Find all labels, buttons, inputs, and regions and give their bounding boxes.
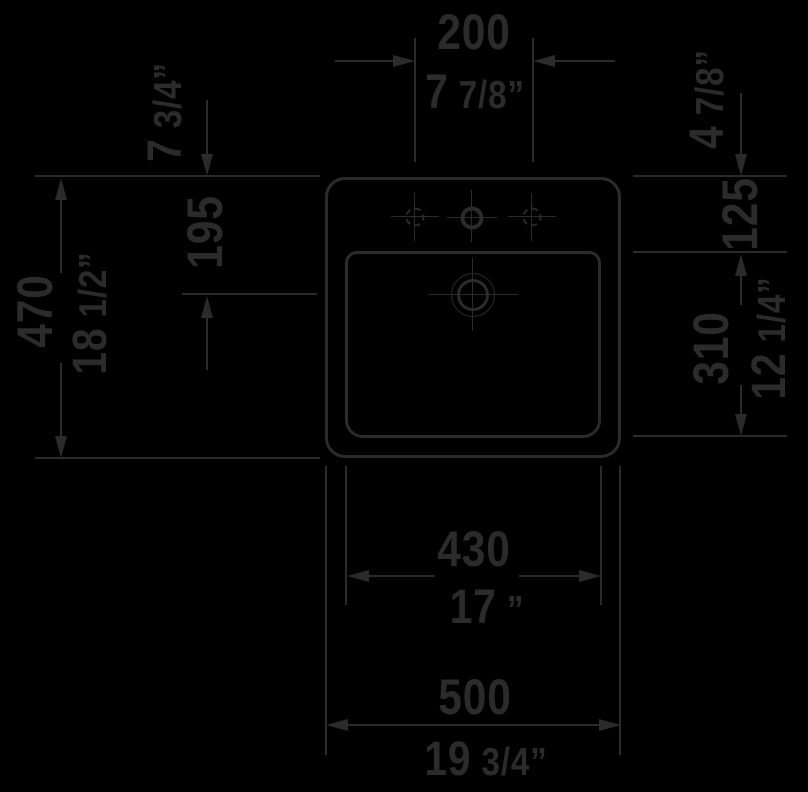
extension-line-basin-right (600, 466, 602, 605)
dim-basin-width-inch-label: 17 ” (450, 584, 525, 632)
dim-basin-width-line-left (369, 575, 435, 577)
dim-basin-width-line-right (519, 575, 581, 577)
dim-rim-basin-line-top (740, 93, 742, 156)
dim-tap-spacing-inch-label: 7 7/8” (425, 69, 525, 117)
dim-basin-depth-line-top (740, 276, 742, 305)
arrow-right-icon (393, 55, 415, 67)
arrow-up-icon (735, 254, 747, 276)
dim-overall-depth-line-top (60, 199, 62, 273)
arrow-down-icon (735, 414, 747, 436)
dim-rim-basin-inch-label: 4 7/8” (684, 49, 732, 149)
arrow-up-icon (55, 178, 67, 200)
dim-tap-spacing-line-right (555, 60, 615, 62)
dim-rim-basin-mm-label: 125 (715, 177, 765, 250)
faucet-center-crosshair-h (447, 217, 497, 218)
technical-drawing-canvas: 200 7 7/8” 7 3/4” 195 470 18 1/2” 4 7/8”… (0, 0, 808, 792)
faucet-left-crosshair-h (391, 216, 439, 217)
drain-crosshair-h (428, 294, 518, 295)
arrow-left-icon (347, 570, 369, 582)
arrow-right-icon (599, 719, 621, 731)
dim-overall-depth-inch-label: 18 1/2” (67, 251, 115, 374)
dim-overall-width-inch-label: 19 3/4” (424, 736, 547, 784)
extension-line-rim-left (325, 466, 327, 755)
dim-overall-width-mm-label: 500 (438, 672, 511, 722)
extension-line-basin-top-right (633, 251, 787, 253)
arrow-down-icon (201, 154, 213, 176)
extension-line-drain-center (182, 293, 317, 295)
arrow-right-icon (579, 570, 601, 582)
dim-basin-depth-mm-label: 310 (686, 311, 736, 384)
dim-rim-drain-line-top (206, 100, 208, 156)
dim-rim-drain-mm-label: 195 (180, 195, 230, 268)
extension-line-basin-bottom-right (633, 435, 787, 437)
extension-line-rim-top-left (35, 175, 320, 177)
extension-line-rim-right (619, 466, 621, 755)
dim-overall-depth-line-bottom (60, 363, 62, 437)
dim-basin-width-mm-label: 430 (437, 524, 510, 574)
arrow-left-icon (533, 55, 555, 67)
dim-rim-drain-line-bottom (206, 318, 208, 370)
extension-line-basin-left (345, 466, 347, 605)
arrow-up-icon (201, 296, 213, 318)
arrow-down-icon (55, 436, 67, 458)
dim-rim-drain-inch-label: 7 3/4” (142, 62, 190, 162)
dim-overall-depth-mm-label: 470 (10, 274, 60, 347)
dim-basin-depth-line-bottom (740, 385, 742, 415)
extension-line-rim-bottom-left (35, 457, 320, 459)
dim-tap-spacing-mm-label: 200 (437, 7, 510, 57)
arrow-down-icon (735, 154, 747, 176)
dim-basin-depth-inch-label: 12 1/4” (746, 276, 794, 399)
dim-tap-spacing-line-left (335, 60, 395, 62)
faucet-center-crosshair-v (471, 190, 472, 242)
faucet-right-crosshair-h (508, 216, 556, 217)
arrow-left-icon (326, 719, 348, 731)
